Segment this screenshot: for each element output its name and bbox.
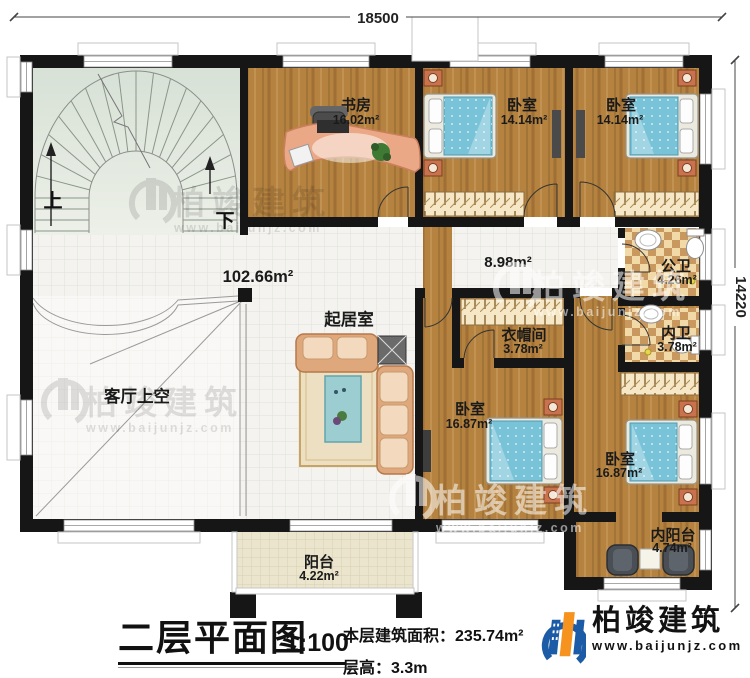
wardrobe-bedroom1	[424, 192, 524, 216]
tv-cabinet	[552, 110, 561, 158]
wall	[573, 217, 580, 227]
window-sill	[7, 57, 20, 97]
floor-drain	[645, 349, 651, 355]
floor-area-note: 本层建筑面积：235.74m²	[343, 622, 524, 646]
title-underline-2	[118, 667, 352, 668]
pillow	[544, 454, 557, 479]
tv-cabinet	[576, 110, 585, 158]
label-study: 书房	[341, 96, 371, 114]
title-underline	[118, 662, 346, 665]
window-sill	[277, 43, 375, 55]
tv	[423, 430, 431, 472]
svg-text:www.baijunjz.com: www.baijunjz.com	[85, 421, 234, 435]
floor-height-note: 层高：3.3m	[343, 654, 427, 678]
bed	[486, 418, 562, 484]
area-inner-balcony: 4.74m²	[652, 541, 692, 555]
nightstand	[424, 160, 442, 176]
svg-text:柏竣建筑: 柏竣建筑	[532, 268, 692, 305]
area-bedroom3: 16.87m²	[446, 417, 493, 431]
label-open-area: 102.66m²	[223, 268, 294, 286]
toilet-tank	[687, 229, 704, 236]
svg-text:柏竣建筑: 柏竣建筑	[434, 482, 594, 519]
area-cloakroom: 3.78m²	[503, 342, 543, 356]
drawing-scale: 1:100	[285, 629, 349, 658]
window-sill	[236, 588, 414, 594]
svg-text:www.baijunjz.com: www.baijunjz.com	[173, 221, 322, 235]
wall	[618, 228, 625, 238]
pillow	[680, 129, 693, 153]
nightstand	[544, 399, 562, 415]
bed	[424, 94, 496, 158]
svg-text:www.baijunjz.com: www.baijunjz.com	[533, 305, 682, 319]
coffee-table	[325, 376, 361, 442]
window-sill	[413, 532, 418, 592]
window-sill	[78, 43, 178, 55]
window-sill	[712, 229, 725, 285]
area-bedroom4: 16.87m²	[596, 466, 643, 480]
logo-name: 柏竣建筑	[592, 606, 743, 638]
sink	[635, 230, 661, 250]
pillow	[679, 425, 692, 449]
window-sill	[7, 225, 20, 275]
label-bedroom2: 卧室	[606, 96, 636, 114]
svg-text:柏竣建筑: 柏竣建筑	[84, 384, 244, 421]
floorplan-page: { "dimensions": {"top": "18500", "right"…	[0, 0, 750, 677]
area-bedroom1: 14.14m²	[501, 113, 548, 127]
logo-icon	[538, 606, 586, 672]
toilet	[687, 238, 704, 259]
area-bedroom2: 14.14m²	[597, 113, 644, 127]
pillow	[544, 423, 557, 448]
drawing-title: 二层平面图	[118, 620, 308, 656]
logo-url: www.baijunjz.com	[592, 638, 743, 653]
label-stair-up: 上	[43, 190, 62, 212]
nightstand	[678, 160, 696, 176]
wall	[662, 512, 699, 522]
area-balcony: 4.22m²	[299, 569, 339, 583]
wall	[415, 288, 425, 298]
window-sill	[232, 532, 237, 592]
area-study: 16.02m²	[333, 113, 380, 127]
wall	[423, 217, 524, 227]
nightstand	[679, 401, 697, 417]
dim-width: 18500	[357, 10, 399, 27]
nightstand	[679, 489, 697, 505]
window-sill	[712, 89, 725, 169]
company-logo: 柏竣建筑 www.baijunjz.com	[538, 606, 743, 672]
pillow	[429, 99, 442, 123]
label-living: 起居室	[323, 309, 374, 329]
window-sill	[412, 17, 478, 61]
wall	[20, 55, 33, 529]
window-sill	[712, 305, 725, 355]
floorplan-drawing: 书房 16.02m² 卧室 14.14m² 卧室 14.14m² 公卫 4.26…	[0, 0, 750, 620]
wall	[452, 296, 460, 366]
title-block: 二层平面图 1:100 本层建筑面积：235.74m² 层高：3.3m 柏竣建筑…	[0, 598, 750, 677]
wall	[494, 358, 572, 368]
wall	[452, 358, 464, 368]
window-sill	[712, 413, 725, 489]
wall	[565, 55, 573, 227]
wall	[408, 217, 415, 227]
window-sill	[599, 43, 689, 55]
nightstand	[424, 70, 442, 86]
wall	[615, 217, 699, 227]
pillow	[679, 455, 692, 479]
label-bedroom3: 卧室	[455, 400, 485, 418]
pillow	[429, 129, 442, 153]
svg-text:www.baijunjz.com: www.baijunjz.com	[435, 521, 584, 535]
nightstand	[678, 70, 696, 86]
dim-height: 14220	[732, 276, 749, 318]
window-sill	[58, 532, 200, 543]
pillow	[680, 99, 693, 123]
wardrobe-bedroom2	[614, 192, 699, 216]
wall	[557, 217, 565, 227]
wall	[618, 345, 625, 362]
window-sill	[7, 395, 20, 460]
label-bedroom1: 卧室	[507, 96, 537, 114]
wall	[238, 288, 252, 302]
wall	[618, 362, 712, 372]
area-inner-bath: 3.78m²	[657, 340, 697, 354]
svg-text:柏竣建筑: 柏竣建筑	[172, 184, 332, 221]
wardrobe-bedroom4	[621, 373, 699, 395]
